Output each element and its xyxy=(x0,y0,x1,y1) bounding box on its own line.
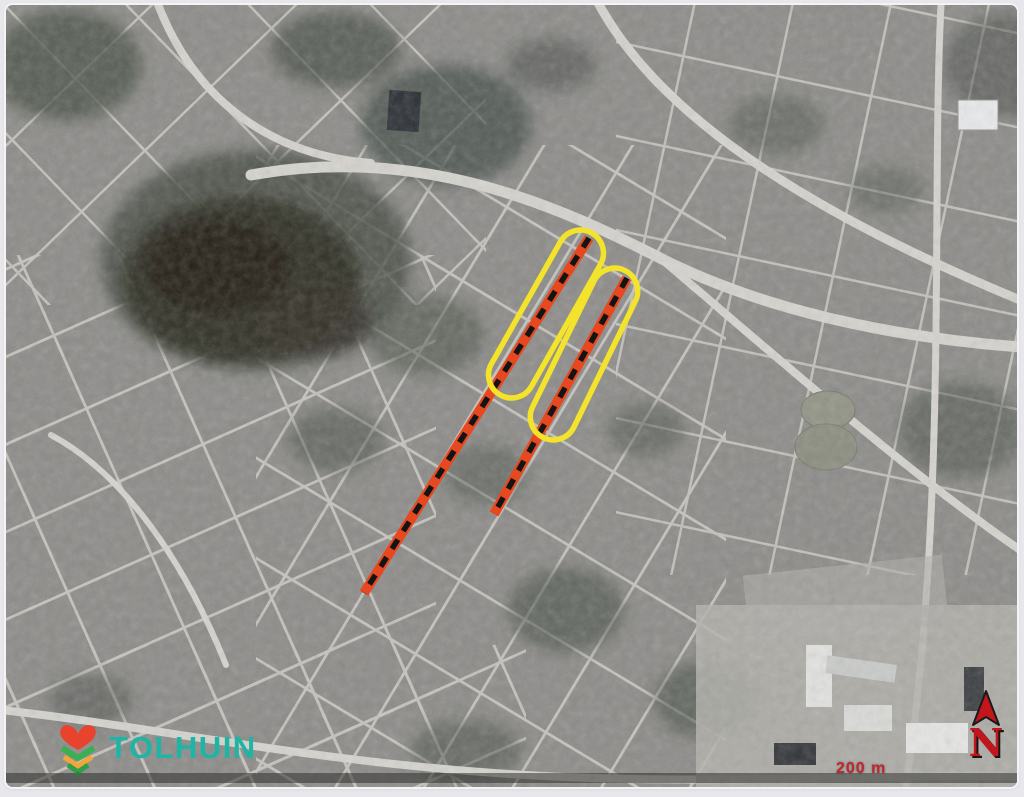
north-label: N xyxy=(969,724,1004,762)
north-indicator: N xyxy=(956,689,1016,762)
tolhuin-logo: TOLHUIN xyxy=(56,719,257,777)
map-frame: TOLHUIN N 200 m xyxy=(6,5,1017,787)
scale-label: 200 m xyxy=(836,760,886,778)
page-background: { "logo": { "text": "TOLHUIN", "color": … xyxy=(0,0,1024,797)
satellite-map xyxy=(6,5,1017,787)
heart-leaves-icon xyxy=(56,719,100,777)
tolhuin-logo-text: TOLHUIN xyxy=(109,730,257,766)
